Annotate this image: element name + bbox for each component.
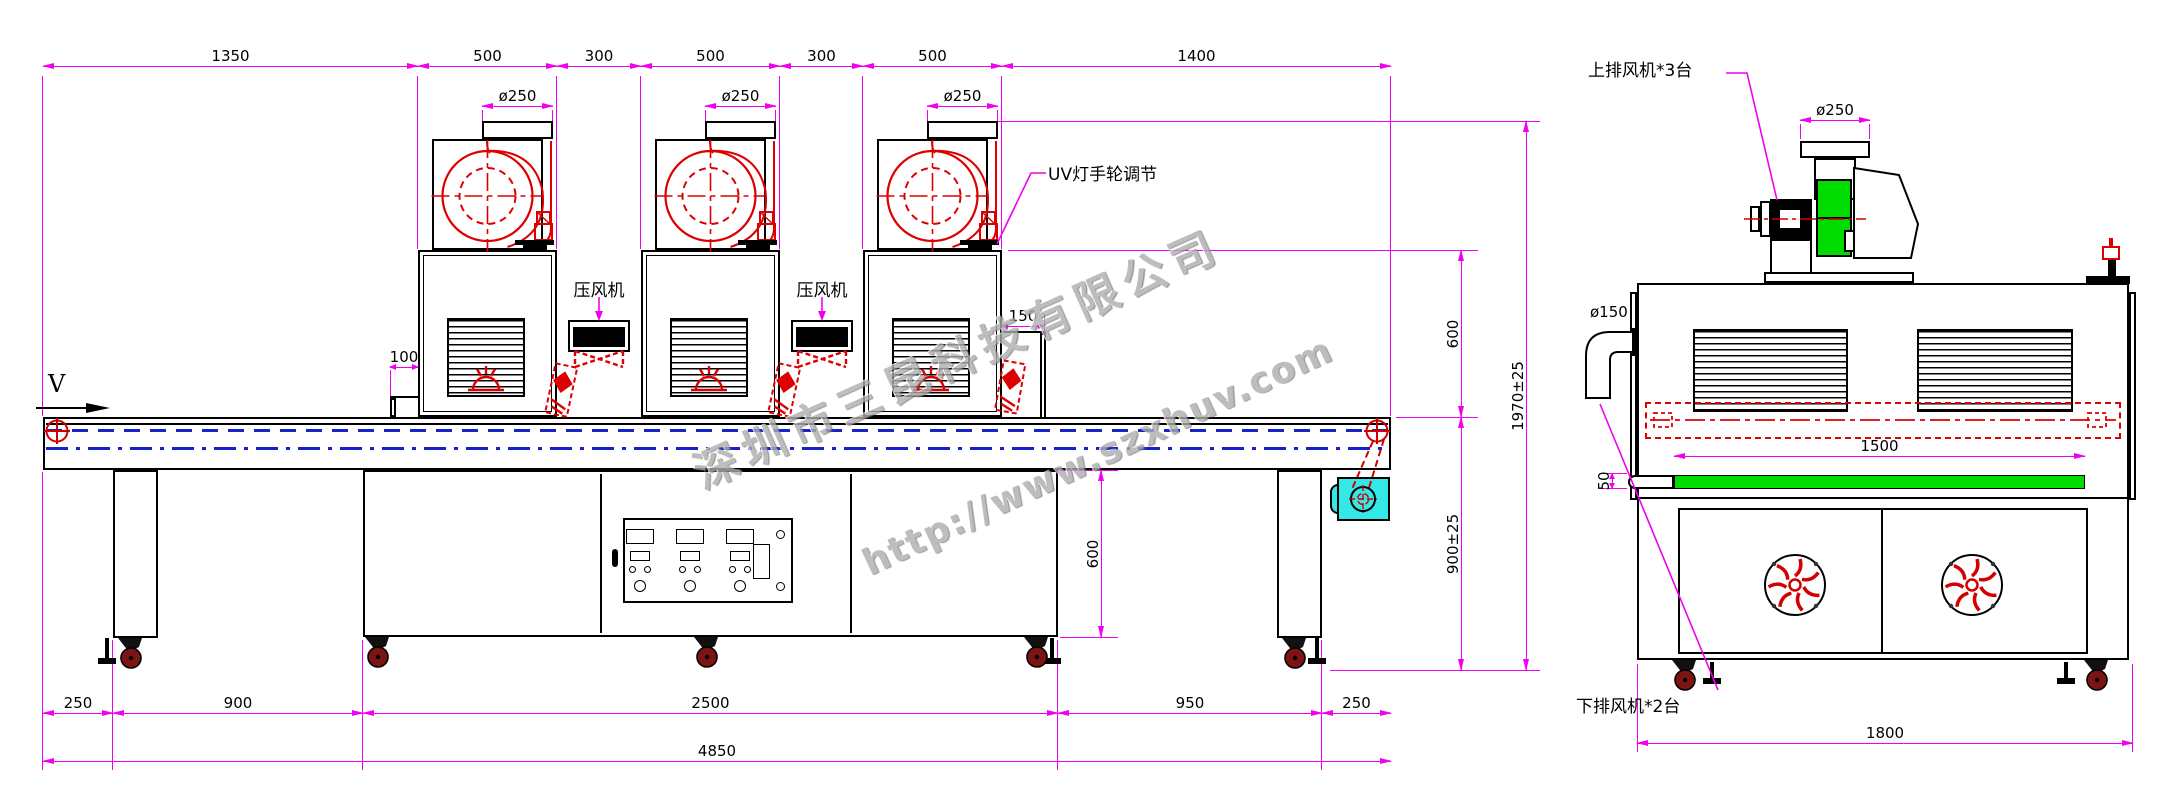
extension-line [862, 76, 863, 249]
dim-lamp-length: 1500 [1674, 456, 2085, 457]
fan-outlet-flange-1 [482, 121, 553, 139]
extension-line [417, 76, 418, 249]
belt-side-lip [1628, 475, 1674, 489]
pressure-fan-label-1: 压风机 [573, 276, 625, 301]
panel-indicator-lamp [776, 582, 785, 591]
conveyor-belt-end-view [1674, 475, 2085, 489]
panel-knob-3 [734, 580, 746, 592]
fan-outlet-flange-3 [927, 121, 998, 139]
panel-subdisplay-2 [680, 551, 700, 561]
leveling-foot [1050, 638, 1054, 660]
dim-inlet-gap: 100 [390, 367, 418, 368]
technical-drawing-canvas: 1350 500 300 500 300 500 1400 ø250 ø250 … [0, 0, 2169, 798]
dim-total-height: 1970±25 [1526, 121, 1527, 670]
extension-line [1060, 637, 1118, 638]
dim-300: 300 [557, 66, 641, 67]
panel-main-switch [753, 544, 770, 579]
upper-exhaust-label: 上排风机*3台 [1588, 56, 1692, 81]
leveling-foot-pad [1043, 658, 1061, 664]
belt-direction-label: V [48, 370, 65, 398]
panel-knob-1 [634, 580, 646, 592]
valve-body-red [2102, 246, 2120, 260]
uv-fan-housing-2 [655, 139, 766, 250]
extension-line [1800, 124, 1801, 139]
fan-motor-cap [1750, 206, 1760, 232]
panel-button [744, 566, 751, 573]
door-handle [612, 549, 618, 567]
panel-display-1 [626, 529, 654, 544]
extension-line [42, 472, 43, 770]
cabinet-door-seam [600, 474, 602, 633]
extension-line [1001, 76, 1002, 249]
cabinet-side-lip-right [2129, 292, 2136, 500]
pressure-fan-1 [573, 327, 625, 347]
dim-500: 500 [418, 66, 557, 67]
valve-handle-red [2109, 238, 2113, 246]
end-louver-panel-right [1917, 329, 2073, 412]
dim-1400: 1400 [1002, 66, 1391, 67]
dim-250: 250 [1322, 713, 1391, 714]
dim-stand-height: 600 [1101, 470, 1102, 637]
extension-line [362, 640, 363, 770]
dim-250: 250 [43, 713, 113, 714]
dim-belt-height: 900±25 [1461, 417, 1462, 670]
leveling-foot-pad [98, 658, 116, 664]
extension-line [42, 76, 43, 416]
louver-panel-1 [447, 318, 525, 397]
leveling-foot [1315, 638, 1319, 660]
belt-direction-arrow [36, 403, 110, 413]
panel-indicator-lamp [776, 530, 785, 539]
extension-line [1008, 250, 1478, 251]
dim-fan-outlet-dia: ø250 [705, 106, 776, 107]
fan-base-plate [1764, 272, 1914, 283]
panel-display-3 [726, 529, 754, 544]
uv-lamp-zone-outline [1645, 402, 2121, 439]
fan-motor-window [1780, 210, 1800, 228]
dim-outlet-dia: ø250 [1800, 120, 1870, 121]
extension-line [556, 76, 557, 249]
dim-300: 300 [780, 66, 863, 67]
lower-fan-panel [1678, 508, 2088, 654]
end-louver-panel-left [1693, 329, 1848, 412]
exhaust-outlet-flange [1800, 141, 1870, 158]
dim-1350: 1350 [43, 66, 418, 67]
lower-panel-seam [1881, 510, 1883, 652]
fan-outlet-flange-2 [705, 121, 776, 139]
dim-900: 900 [113, 713, 363, 714]
panel-knob-2 [684, 580, 696, 592]
pressure-fan-2 [796, 327, 848, 347]
uv-handwheel-label: UV灯手轮调节 [1048, 160, 1157, 185]
extension-line [1390, 76, 1391, 416]
dim-lamp-to-belt: 600 [1461, 250, 1462, 417]
stand-leg-right [1277, 470, 1322, 638]
louver-panel-2 [670, 318, 748, 397]
leveling-foot-pad [1703, 678, 1721, 684]
leveling-foot-pad [2057, 678, 2075, 684]
duct-dia-label: ø150 [1590, 303, 1628, 321]
panel-subdisplay-3 [730, 551, 750, 561]
belt-guard-split-line [1816, 217, 1852, 219]
extension-line [640, 76, 641, 249]
valve-bracket [2086, 276, 2130, 284]
panel-subdisplay-1 [630, 551, 650, 561]
panel-button [679, 566, 686, 573]
dim-950: 950 [1058, 713, 1322, 714]
dim-2500: 2500 [363, 713, 1058, 714]
belt-guard-latch [1844, 230, 1856, 252]
extension-line [1396, 417, 1478, 418]
extension-line [1869, 124, 1870, 139]
panel-button [694, 566, 701, 573]
panel-display-2 [676, 529, 704, 544]
drive-motor [1337, 477, 1390, 521]
extension-line [390, 370, 391, 398]
dim-fan-outlet-dia: ø250 [482, 106, 553, 107]
cabinet-door-seam [850, 474, 852, 633]
extension-line [1330, 670, 1540, 671]
extension-line [970, 121, 1540, 122]
cabinet-side-lip-left [1630, 292, 1637, 500]
uv-fan-housing-3 [877, 139, 988, 250]
dim-overall-width: 1800 [1637, 743, 2133, 744]
panel-button [629, 566, 636, 573]
dim-belt-offset: 50 [1612, 474, 1613, 488]
leveling-foot-pad [1308, 658, 1326, 664]
dim-fan-outlet-dia: ø250 [927, 106, 998, 107]
panel-button [729, 566, 736, 573]
leveling-foot [105, 638, 109, 660]
belt-table-line [1637, 497, 2129, 499]
lower-exhaust-label: 下排风机*2台 [1576, 692, 1680, 717]
stand-leg-left [113, 470, 158, 638]
dim-500: 500 [641, 66, 780, 67]
uv-fan-housing-1 [432, 139, 543, 250]
valve-stem [2108, 260, 2116, 276]
dim-500: 500 [863, 66, 1002, 67]
extension-line [779, 76, 780, 249]
panel-button [644, 566, 651, 573]
pressure-fan-label-2: 压风机 [796, 276, 848, 301]
inlet-lip-wall [390, 398, 396, 417]
dim-overall-length: 4850 [43, 761, 1391, 762]
